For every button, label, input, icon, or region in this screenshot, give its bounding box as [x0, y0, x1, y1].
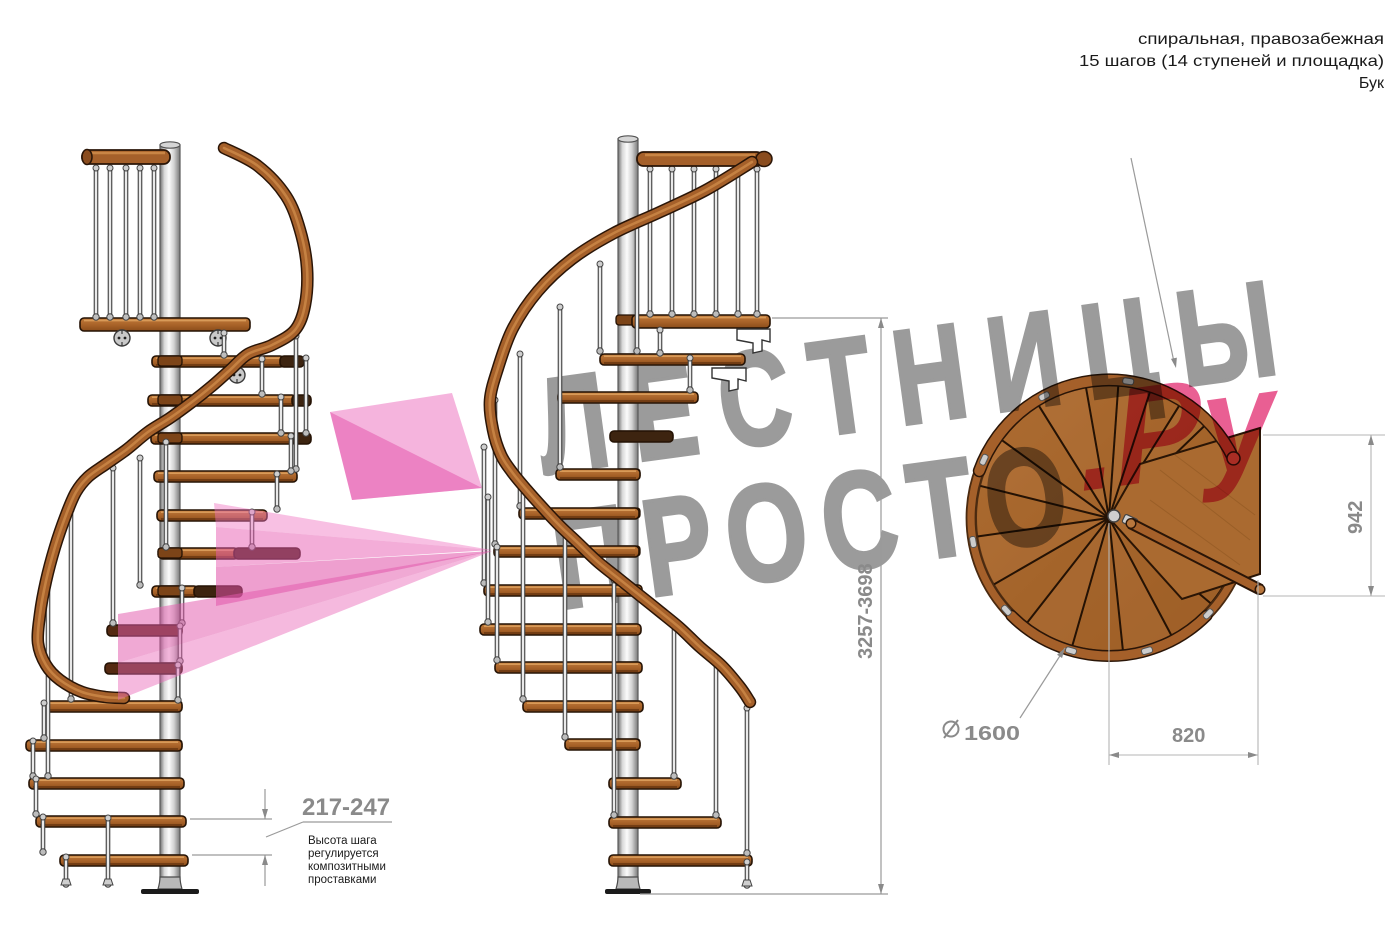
svg-text:1600: 1600 [964, 723, 1020, 745]
svg-text:спиральная, правозабежная: спиральная, правозабежная [1138, 31, 1384, 48]
svg-text:820: 820 [1172, 725, 1205, 747]
svg-text:Бук: Бук [1359, 75, 1385, 92]
svg-text:15 шагов (14 ступеней и площад: 15 шагов (14 ступеней и площадка) [1079, 53, 1384, 70]
svg-text:3257-3698: 3257-3698 [855, 563, 877, 659]
svg-text:217-247: 217-247 [302, 794, 390, 821]
svg-text:Высота шагарегулируетсякомпози: Высота шагарегулируетсякомпозитнымипрост… [308, 835, 386, 886]
svg-text:.Ру: .Ру [1072, 338, 1284, 523]
svg-text:942: 942 [1345, 501, 1367, 534]
